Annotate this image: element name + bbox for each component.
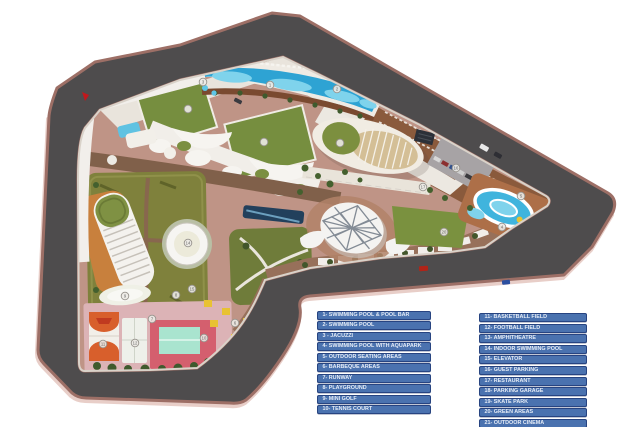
svg-text:10: 10 — [202, 336, 207, 341]
svg-text:12: 12 — [133, 341, 138, 346]
svg-text:14: 14 — [186, 241, 191, 246]
svg-text:11: 11 — [101, 342, 106, 347]
svg-text:17: 17 — [421, 185, 426, 190]
svg-text:20: 20 — [442, 230, 447, 235]
svg-text:16: 16 — [454, 166, 459, 171]
svg-text:15: 15 — [190, 287, 195, 292]
